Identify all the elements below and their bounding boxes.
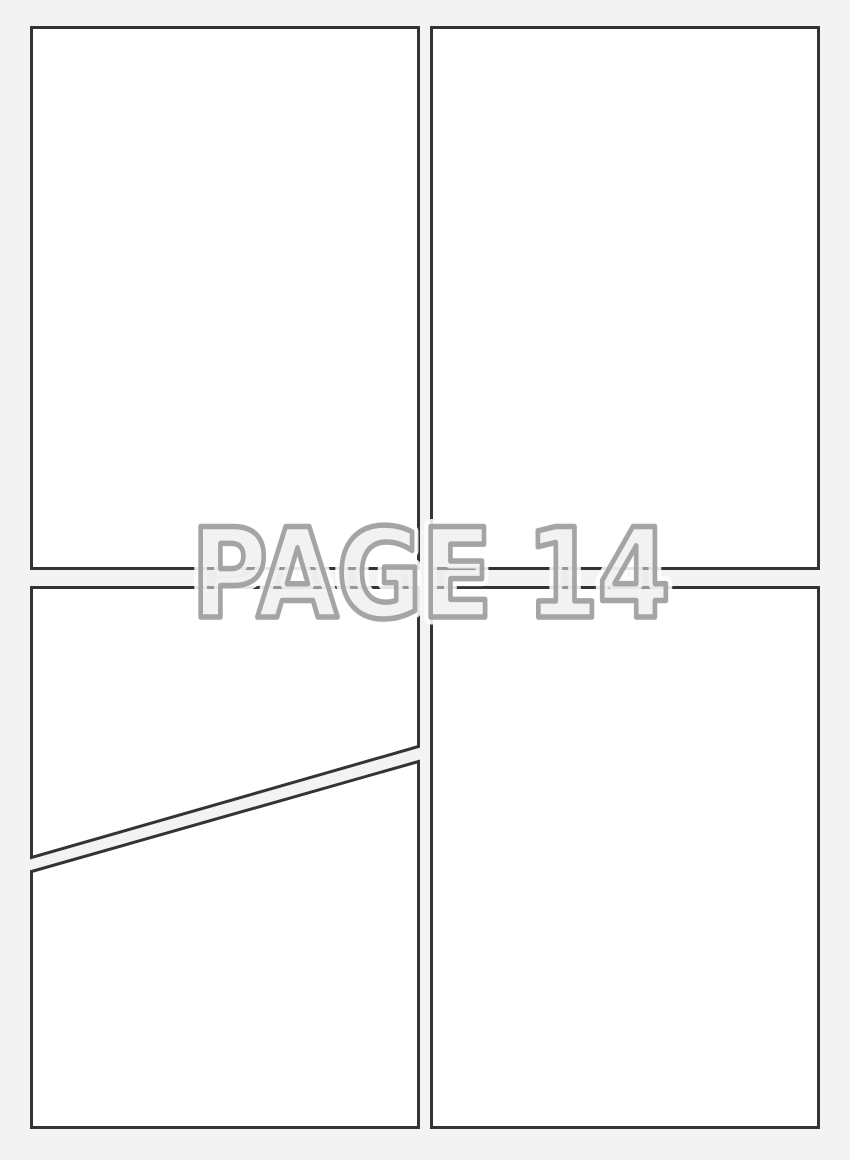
comic-page: PAGE 14 PAGE 14 PAGE 14 (0, 0, 850, 1160)
watermark-outline-text: PAGE 14 (191, 503, 669, 647)
comic-page-canvas: PAGE 14 PAGE 14 PAGE 14 (0, 0, 850, 1160)
panel-bottom-right (432, 588, 819, 1128)
panel-top-right (432, 28, 819, 569)
panel-top-left (32, 28, 419, 569)
watermark: PAGE 14 PAGE 14 PAGE 14 (191, 503, 669, 647)
